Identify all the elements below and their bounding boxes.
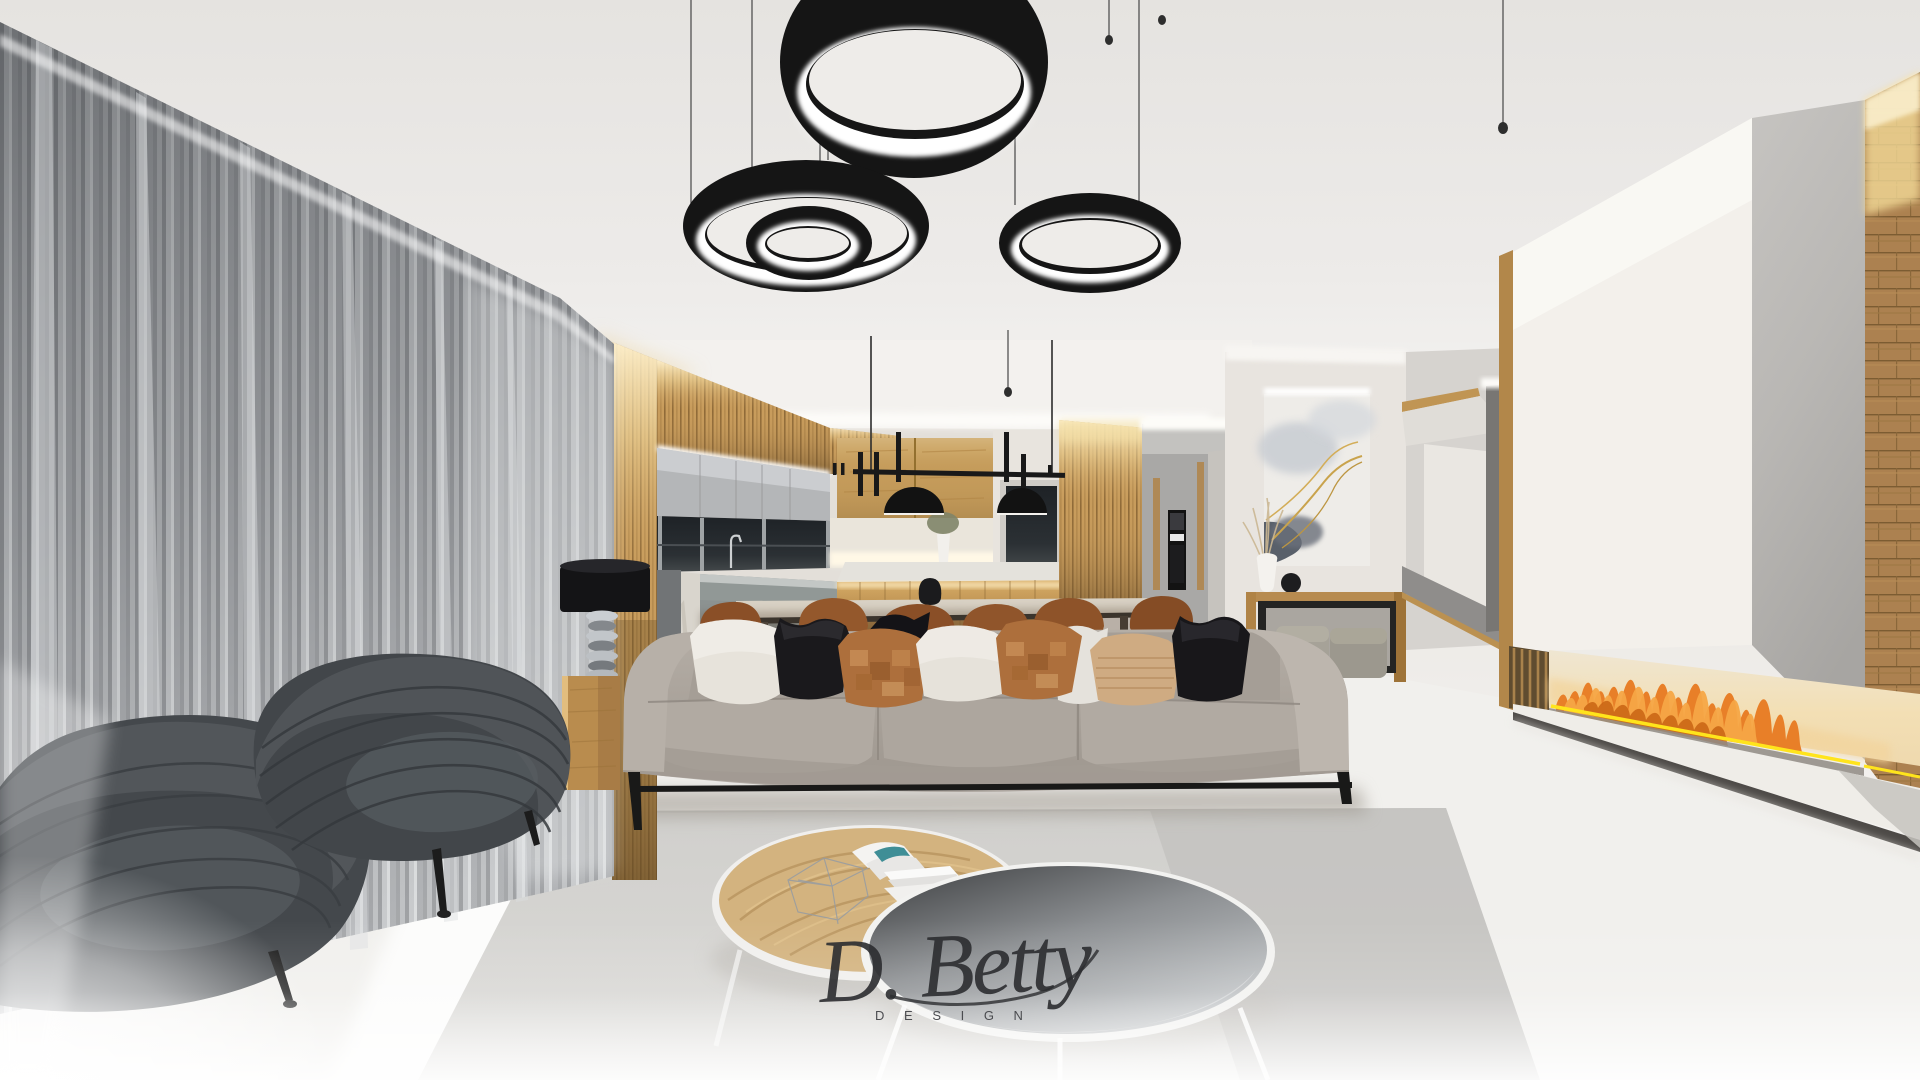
svg-text:D E S I G N: D E S I G N bbox=[875, 1008, 1031, 1023]
